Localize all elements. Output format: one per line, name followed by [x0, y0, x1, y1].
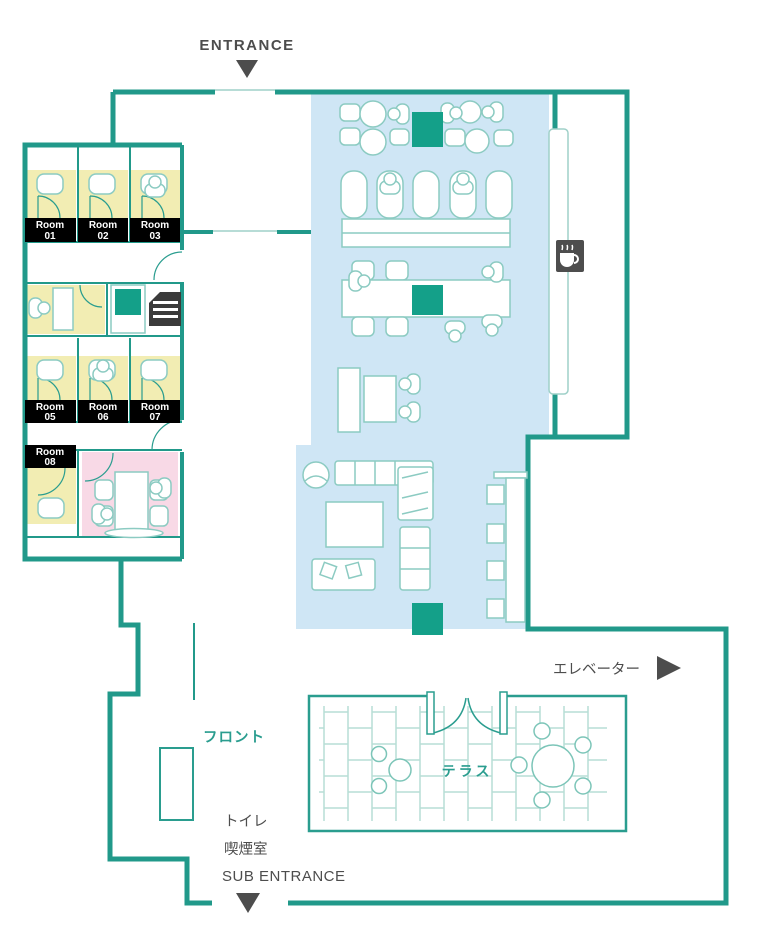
entrance-down-arrow-icon	[236, 60, 258, 78]
svg-text:Room: Room	[36, 220, 64, 231]
cabinet	[111, 285, 145, 333]
sub-entrance-down-arrow-icon	[236, 893, 260, 913]
front-desk-label: フロント	[203, 730, 265, 746]
terrace-label: テラス	[442, 763, 493, 779]
room-01-label: Room 01	[25, 218, 76, 242]
svg-text:01: 01	[44, 231, 56, 242]
room-06-label: Room 06	[78, 400, 128, 423]
entrance-label: ENTRANCE	[199, 37, 294, 54]
printer-copier-icon	[149, 292, 181, 326]
svg-text:Room: Room	[141, 220, 169, 231]
elevator-label: エレベーター	[553, 661, 640, 678]
front-desk	[160, 748, 193, 820]
svg-text:02: 02	[97, 231, 109, 242]
coffee-machine-icon	[556, 240, 584, 272]
svg-text:Room: Room	[89, 220, 117, 231]
room-07-label: Room 07	[130, 400, 180, 423]
svg-text:03: 03	[149, 231, 161, 242]
room-02-label: Room 02	[78, 218, 128, 242]
room-labels: Room 01 Room 02 Room 03 Room 05 Room 06 …	[25, 218, 180, 468]
svg-text:08: 08	[44, 457, 56, 468]
smoking-room-label: 喫煙室	[224, 841, 268, 858]
floorplan-page: テラス	[0, 0, 779, 941]
terrace: テラス	[309, 692, 626, 831]
svg-text:07: 07	[149, 412, 161, 423]
floorplan-svg: テラス	[0, 0, 779, 941]
sub-entrance-label: SUB ENTRANCE	[222, 868, 346, 885]
room-08-label: Room 08	[25, 445, 76, 468]
svg-text:05: 05	[44, 412, 56, 423]
toilet-label: トイレ	[224, 814, 268, 830]
room-03-label: Room 03	[130, 218, 180, 242]
workstation	[338, 368, 396, 432]
elevator-right-arrow-icon	[657, 656, 681, 680]
room-05-label: Room 05	[25, 400, 76, 423]
bar-counter	[341, 171, 512, 247]
svg-text:06: 06	[97, 412, 109, 423]
